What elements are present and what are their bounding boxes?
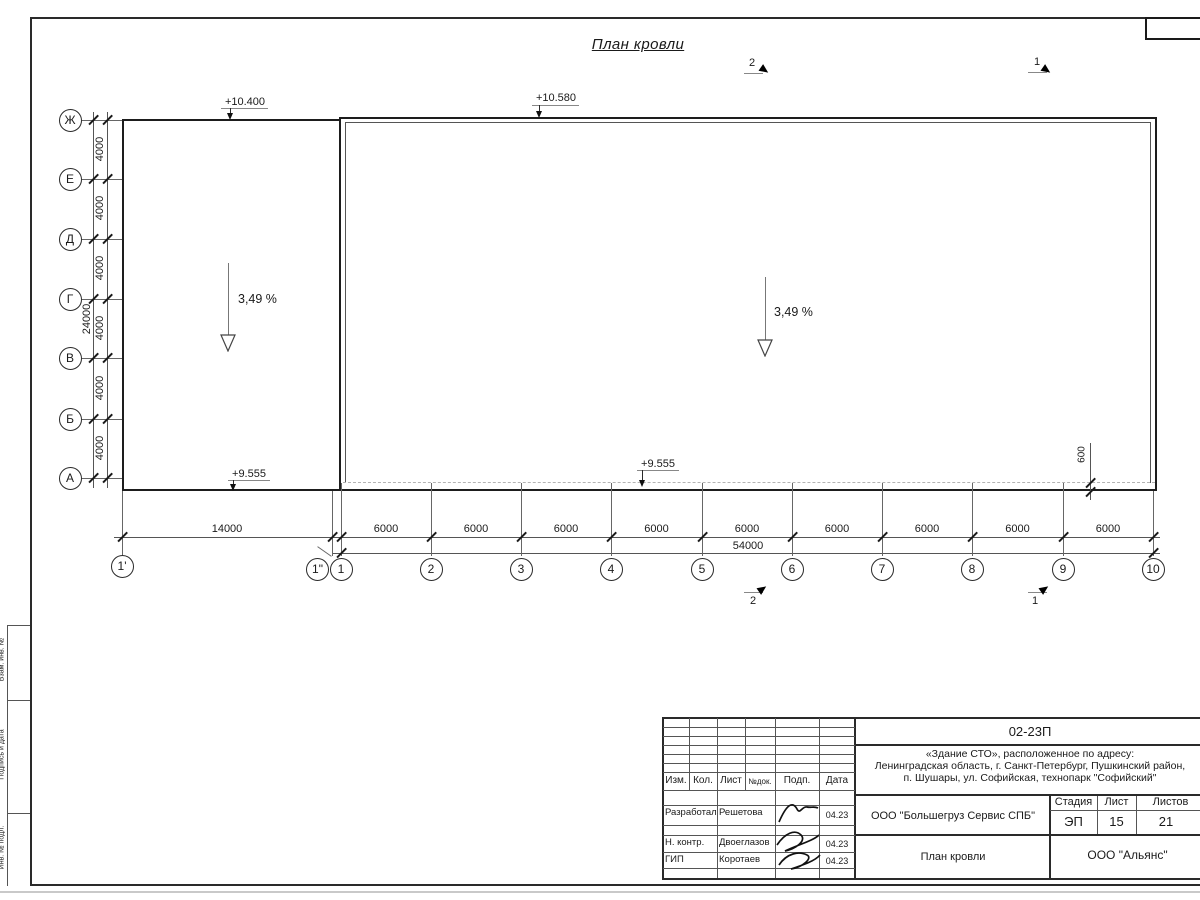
axis-bubble-bottom: 10 bbox=[1142, 558, 1165, 581]
axis-line-left bbox=[82, 358, 122, 359]
tb-role: Н. контр. bbox=[665, 837, 717, 848]
frame-bottom bbox=[30, 884, 1200, 886]
elevation-arrow-icon bbox=[536, 111, 542, 118]
parapet-inner-top bbox=[345, 122, 1151, 123]
parapet-inner-left bbox=[345, 122, 346, 483]
tb-stage-label: Стадия bbox=[1050, 796, 1097, 808]
tb-col-izm: Изм. bbox=[663, 775, 689, 786]
tb-company: ООО "Альянс" bbox=[1050, 848, 1200, 862]
dim-value-54000: 54000 bbox=[718, 540, 778, 552]
axis-bubble-bottom: 1" bbox=[306, 558, 329, 581]
tb-line bbox=[663, 736, 855, 737]
tb-col-doc: №док. bbox=[745, 777, 775, 786]
tb-date: 04.23 bbox=[819, 810, 855, 820]
axis-bubble-bottom: 4 bbox=[600, 558, 623, 581]
axis-line-bottom bbox=[972, 483, 973, 556]
dim-value-4000: 4000 bbox=[94, 124, 106, 174]
slope-value: 3,49 % bbox=[774, 305, 813, 319]
axis-leader-slant bbox=[317, 546, 331, 557]
tb-project-line3: п. Шушары, ул. Софийская, технопарк "Соф… bbox=[857, 772, 1200, 784]
frame-top bbox=[30, 17, 1200, 19]
tb-doc-number: 02-23П bbox=[855, 724, 1200, 739]
axis-line-bottom bbox=[122, 491, 123, 556]
tb-line bbox=[662, 878, 1200, 881]
tb-line bbox=[662, 717, 664, 879]
tb-line bbox=[663, 805, 855, 806]
section-arrow-icon bbox=[1041, 64, 1053, 76]
margin-label: Инв. № подл. bbox=[0, 808, 6, 888]
tb-line bbox=[663, 825, 855, 826]
axis-bubble-bottom: 3 bbox=[510, 558, 533, 581]
tb-date: 04.23 bbox=[819, 856, 855, 866]
axis-line-bottom bbox=[341, 483, 342, 556]
elevation-underline bbox=[637, 470, 679, 471]
elevation-arrow-icon bbox=[227, 113, 233, 120]
elevation-value: +10.400 bbox=[220, 96, 270, 108]
axis-line-bottom bbox=[882, 483, 883, 556]
section-arrow-icon bbox=[1039, 583, 1051, 595]
dim-value-4000: 4000 bbox=[94, 363, 106, 413]
axis-bubble-left: А bbox=[59, 467, 82, 490]
margin-divider bbox=[7, 700, 30, 701]
tb-stage-value: ЭП bbox=[1050, 814, 1097, 829]
elevation-value: +10.580 bbox=[531, 92, 581, 104]
dim-value-6000: 6000 bbox=[897, 523, 957, 535]
tb-name: Двоеглазов bbox=[719, 837, 775, 848]
axis-bubble-bottom: 1' bbox=[111, 555, 134, 578]
axis-bubble-bottom: 9 bbox=[1052, 558, 1075, 581]
tb-project-line1: «Здание СТО», расположенное по адресу: bbox=[857, 748, 1200, 760]
axis-bubble-bottom: 1 bbox=[330, 558, 353, 581]
tb-line bbox=[855, 744, 1200, 746]
tb-line bbox=[1050, 810, 1200, 811]
signature-icon bbox=[776, 798, 820, 826]
dim-value-6000: 6000 bbox=[356, 523, 416, 535]
dim-value-6000: 6000 bbox=[536, 523, 596, 535]
axis-bubble-bottom: 5 bbox=[691, 558, 714, 581]
elevation-value: +9.555 bbox=[636, 458, 680, 470]
tb-line bbox=[663, 754, 855, 755]
parapet-inner-right bbox=[1150, 122, 1151, 483]
tb-line bbox=[662, 717, 1200, 719]
axis-line-left bbox=[82, 179, 122, 180]
dim-value-6000: 6000 bbox=[717, 523, 777, 535]
dim-value-6000: 6000 bbox=[1078, 523, 1138, 535]
elevation-underline bbox=[221, 108, 268, 109]
margin-divider bbox=[7, 625, 30, 626]
axis-line-bottom bbox=[1063, 483, 1064, 556]
elevation-arrow-icon bbox=[639, 480, 645, 487]
tb-line bbox=[663, 790, 855, 791]
axis-line-left bbox=[82, 120, 122, 121]
tb-sheets-value: 21 bbox=[1136, 814, 1196, 829]
axis-line-bottom bbox=[332, 491, 333, 556]
axis-line-bottom bbox=[702, 483, 703, 556]
slope-value: 3,49 % bbox=[238, 292, 277, 306]
tb-role: ГИП bbox=[665, 854, 717, 865]
section-number: 2 bbox=[746, 57, 758, 69]
frame-left bbox=[30, 17, 32, 886]
tb-name: Коротаев bbox=[719, 854, 775, 865]
elevation-arrow-icon bbox=[230, 484, 236, 491]
dim-value-14000: 14000 bbox=[197, 523, 257, 535]
axis-bubble-bottom: 6 bbox=[781, 558, 804, 581]
axis-bubble-left: Д bbox=[59, 228, 82, 251]
dim-value-4000: 4000 bbox=[94, 423, 106, 473]
section-number: 1 bbox=[1028, 595, 1042, 607]
roof-edge-dashed-line bbox=[343, 482, 1155, 483]
section-arrow-icon bbox=[759, 64, 771, 76]
axis-line-bottom bbox=[792, 483, 793, 556]
tb-name: Решетова bbox=[719, 807, 775, 818]
axis-bubble-left: Ж bbox=[59, 109, 82, 132]
drawing-title: План кровли bbox=[538, 36, 738, 53]
dim-value-600: 600 bbox=[1077, 425, 1088, 485]
slope-arrow-line bbox=[765, 277, 766, 340]
axis-line-left bbox=[82, 419, 122, 420]
tb-line bbox=[663, 835, 855, 836]
tb-line bbox=[663, 772, 855, 773]
tb-client: ООО "Большегруз Сервис СПБ" bbox=[857, 810, 1049, 822]
axis-bubble-bottom: 8 bbox=[961, 558, 984, 581]
tb-col-podp: Подп. bbox=[775, 775, 819, 786]
section-number: 2 bbox=[747, 595, 759, 607]
tb-line bbox=[663, 868, 855, 869]
tb-sheet-value: 15 bbox=[1097, 814, 1136, 829]
tb-col-kol: Кол. bbox=[689, 775, 717, 786]
tb-project-line2: Ленинградская область, г. Санкт-Петербур… bbox=[857, 760, 1200, 772]
signature-icon bbox=[773, 827, 823, 873]
axis-line-left bbox=[82, 478, 122, 479]
axis-line-left bbox=[82, 299, 122, 300]
elevation-underline bbox=[228, 480, 270, 481]
axis-line-bottom bbox=[1153, 491, 1154, 556]
slope-arrowhead-icon bbox=[220, 334, 236, 352]
tb-sheets-label: Листов bbox=[1136, 796, 1200, 808]
tb-line bbox=[663, 852, 855, 853]
axis-bubble-bottom: 7 bbox=[871, 558, 894, 581]
tb-role: Разработал bbox=[665, 807, 717, 818]
dim-value-6000: 6000 bbox=[627, 523, 687, 535]
margin-label: Подпись и дата bbox=[0, 715, 6, 795]
slope-arrowhead-icon bbox=[757, 339, 773, 357]
tb-line bbox=[663, 727, 855, 728]
tb-line bbox=[854, 718, 856, 878]
section-arrow-icon bbox=[757, 583, 769, 595]
axis-bubble-bottom: 2 bbox=[420, 558, 443, 581]
tb-line bbox=[663, 745, 855, 746]
dim-value-6000: 6000 bbox=[988, 523, 1048, 535]
axis-line-bottom bbox=[431, 483, 432, 556]
tb-sheet-title: План кровли bbox=[857, 851, 1049, 863]
axis-bubble-left: Е bbox=[59, 168, 82, 191]
margin-divider bbox=[7, 813, 30, 814]
dim-value-6000: 6000 bbox=[446, 523, 506, 535]
tb-line bbox=[855, 834, 1200, 836]
building-right-outline bbox=[339, 117, 1157, 491]
drawing-sheet: Взам. инв. № Подпись и дата Инв. № подл.… bbox=[0, 0, 1200, 900]
page-edge bbox=[0, 891, 1200, 893]
dim-value-6000: 6000 bbox=[807, 523, 867, 535]
dim-line-horizontal-total bbox=[333, 553, 1160, 554]
dim-value-4000: 4000 bbox=[94, 183, 106, 233]
tb-col-list: Лист bbox=[717, 775, 745, 786]
dim-value-4000: 4000 bbox=[94, 303, 106, 353]
elevation-value: +9.555 bbox=[227, 468, 271, 480]
tb-date: 04.23 bbox=[819, 839, 855, 849]
margin-label: Взам. инв. № bbox=[0, 620, 6, 700]
tb-col-data: Дата bbox=[819, 775, 855, 786]
axis-line-bottom bbox=[611, 483, 612, 556]
section-line bbox=[744, 73, 763, 74]
building-left-outline bbox=[122, 119, 341, 491]
axis-bubble-left: В bbox=[59, 347, 82, 370]
dim-value-4000: 4000 bbox=[94, 243, 106, 293]
section-number: 1 bbox=[1030, 56, 1044, 68]
axis-line-bottom bbox=[521, 483, 522, 556]
tb-sheet-label: Лист bbox=[1097, 796, 1136, 808]
slope-arrow-line bbox=[228, 263, 229, 335]
axis-line-left bbox=[82, 239, 122, 240]
frame-corner-box bbox=[1145, 17, 1200, 40]
axis-bubble-left: Г bbox=[59, 288, 82, 311]
tb-line bbox=[663, 763, 855, 764]
axis-bubble-left: Б bbox=[59, 408, 82, 431]
margin-line bbox=[7, 625, 8, 886]
dim-line-horizontal-chain bbox=[114, 537, 1160, 538]
